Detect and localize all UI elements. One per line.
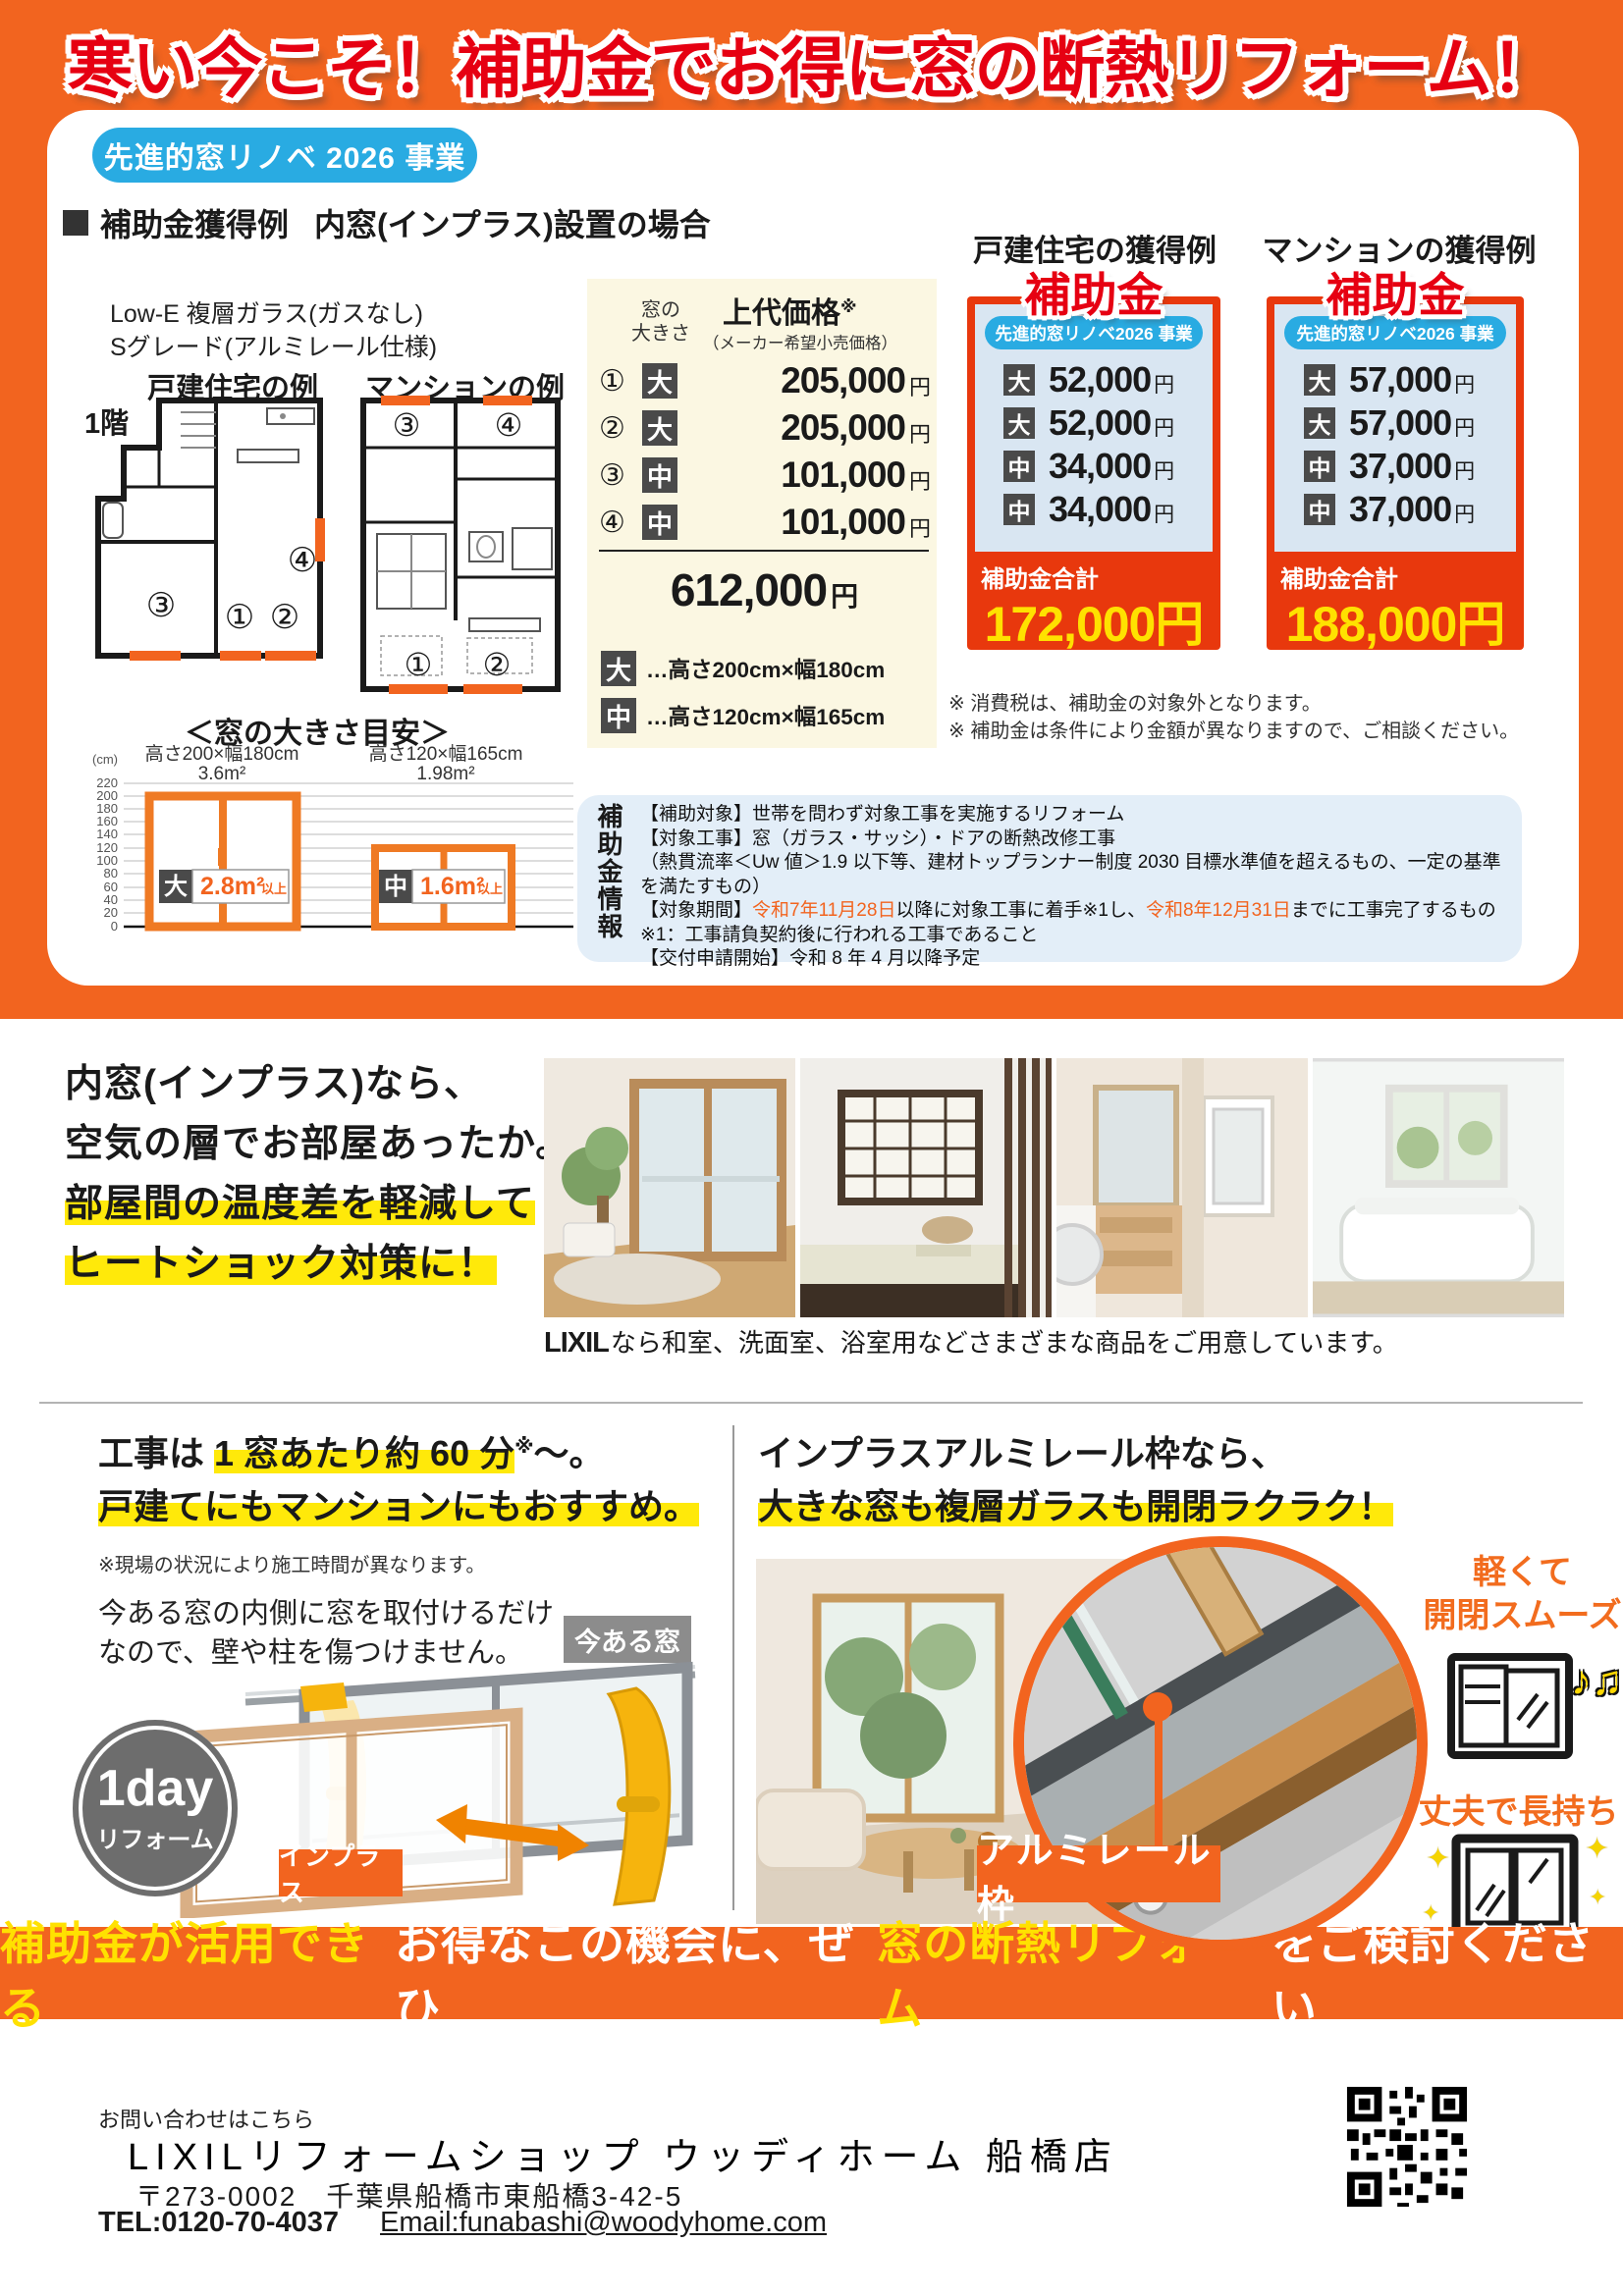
price-row: ① 大 205,000 円 — [599, 359, 931, 402]
main-title: 寒い今こそ！補助金でお得に窓の断熱リフォーム！ — [0, 16, 1623, 111]
info-line-6: 【交付申請開始】令和 8 年 4 月以降予定 — [640, 947, 1514, 972]
rail-label: アルミレール枠 — [977, 1845, 1220, 1902]
subsidy-row: 中 34,000 円 — [1003, 491, 1174, 528]
row-price: 205,000 — [677, 360, 905, 401]
one-day-reform-badge: 1day リフォーム — [73, 1720, 238, 1896]
sparkle-icon: ✦ — [1585, 1832, 1609, 1866]
column-divider — [732, 1425, 734, 1910]
feature-durable: 丈夫で長持ち — [1414, 1785, 1623, 1833]
company-name: LIXILリフォームショップ ウッディホーム 船橋店 — [128, 2126, 1118, 2180]
price-row: ② 大 205,000 円 — [599, 406, 931, 450]
price-col-header: 上代価格※ — [723, 289, 857, 332]
photo-caption: LIXILなら和室、洗面室、浴室用などさまざまな商品をご用意しています。 — [544, 1323, 1398, 1360]
plan-number-2: ② — [270, 599, 299, 636]
svg-text:20: 20 — [104, 905, 118, 920]
row-number: ① — [599, 364, 642, 399]
info-line-1: 【補助対象】世帯を問わず対象工事を実施するリフォーム — [640, 803, 1514, 828]
photo-bathroom — [1313, 1058, 1564, 1317]
info-line-4: 【対象期間】令和7年11月28日以降に対象工事に着手※1し、令和8年12月31日… — [640, 899, 1514, 924]
section-heading: 補助金獲得例 内窓(インプラス)設置の場合 — [63, 200, 711, 245]
price-note-mark: ※ — [840, 297, 857, 316]
subsidy-row: 大 52,000 円 — [1003, 361, 1174, 399]
ruler-ticks: 220200 180160 140120 10080 6040 200 — [96, 775, 118, 934]
plan-number-1: ① — [225, 599, 254, 636]
subsidy-row: 中 34,000 円 — [1003, 448, 1174, 485]
plan-number-4: ④ — [288, 542, 317, 579]
info-line-5: ※1：工事請負契約後に行われる工事であること — [640, 924, 1514, 948]
construction-heading-2: 戸建てにもマンションにもおすすめ。 — [98, 1478, 699, 1529]
size-legend-row: 大 …高さ200cm×幅180cm — [601, 648, 935, 689]
size-chip: 大 — [642, 363, 677, 399]
flyer-page: 寒い今こそ！補助金でお得に窓の断熱リフォーム！ 先進的窓リノベ 2026 事業 … — [0, 0, 1623, 2296]
size-legend-row: 中 …高さ120cm×幅165cm — [601, 695, 935, 736]
info-line-3: （熱貫流率＜Uw 値＞1.9 以下等、建材トップランナー制度 2030 目標水準… — [640, 851, 1514, 899]
phone-number: TEL:0120-70-4037 — [98, 2207, 339, 2239]
large-window-dims: 高さ200×幅180cm — [145, 744, 299, 765]
construction-heading-1: 工事は 1 窓あたり約 60 分※〜。 — [98, 1425, 605, 1476]
square-bullet-icon — [63, 210, 88, 236]
plan-number-3: ③ — [393, 407, 421, 443]
medium-chip: 中 — [384, 874, 407, 900]
subsidy-total: 188,000円 — [1267, 585, 1524, 656]
subsidy-label: 補助金 — [967, 257, 1220, 325]
spec-line-2: Sグレード(アルミレール仕様) — [110, 328, 437, 363]
email-link[interactable]: Email:funabashi@woodyhome.com — [380, 2207, 827, 2239]
subsidy-total: 172,000円 — [967, 585, 1220, 656]
contact-line: TEL:0120-70-4037 Email:funabashi@woodyho… — [98, 2207, 827, 2239]
subsidy-row: 中 37,000 円 — [1304, 491, 1475, 528]
qr-code — [1343, 2083, 1471, 2211]
benefit-line-3: 部屋間の温度差を軽減して — [65, 1174, 574, 1234]
unit-label: (cm) — [92, 752, 118, 767]
price-total: 612,000円 — [599, 563, 929, 616]
rail-pointer-dot — [1143, 1692, 1172, 1722]
svg-text:140: 140 — [96, 827, 118, 841]
construction-body-1: 今ある窓の内側に窓を取付けるだけ — [98, 1590, 554, 1631]
existing-window-tag: 今ある窓 — [564, 1616, 691, 1663]
large-min-area: 2.8m² — [200, 873, 264, 900]
section-heading-sub: 内窓(インプラス)設置の場合 — [314, 200, 711, 245]
medium-window-dims: 高さ120×幅165cm — [369, 744, 523, 765]
subsidy-info-text: 【補助対象】世帯を問わず対象工事を実施するリフォーム 【対象工事】窓（ガラス・サ… — [640, 803, 1514, 972]
construction-note: ※現場の状況により施工時間が異なります。 — [98, 1549, 485, 1577]
music-notes-icon: ♪♫ — [1571, 1657, 1623, 1704]
benefit-line-1: 内窓(インプラス)なら、 — [65, 1054, 574, 1114]
svg-text:0: 0 — [111, 919, 118, 934]
benefit-line-2: 空気の層でお部屋あったか。 — [65, 1114, 574, 1174]
price-col-subheader: （メーカー希望小売価格） — [703, 330, 897, 353]
plan-number-4: ④ — [495, 407, 523, 443]
house-floorplan: ③ ① ② ④ — [90, 393, 330, 666]
rail-heading-1: インプラスアルミレール枠なら、 — [758, 1425, 1286, 1476]
benefit-line-4: ヒートショック対策に！ — [65, 1234, 574, 1294]
large-window-area: 3.6m² — [198, 764, 246, 784]
info-line-2: 【対象工事】窓（ガラス・サッシ）・ドアの断熱改修工事 — [640, 828, 1514, 852]
rail-heading-2: 大きな窓も複層ガラスも開閉ラクラク！ — [758, 1478, 1393, 1529]
photo-japanese-room — [800, 1058, 1052, 1317]
feature-smooth: 軽くて 開閉スムーズ — [1422, 1551, 1623, 1637]
sparkle-icon: ✦ — [1426, 1842, 1450, 1876]
price-col-window-size: 窓の 大きさ — [617, 298, 705, 346]
plan-number-2: ② — [483, 647, 512, 682]
inplus-tag: インプラス — [279, 1849, 403, 1896]
sparkle-icon: ✦ — [1589, 1885, 1606, 1910]
bottom-banner: 補助金が活用できるお得なこの機会に、ぜひ窓の断熱リフォームをご検討ください — [0, 1927, 1623, 2019]
program-badge: 先進的窓リノベ 2026 事業 — [92, 128, 477, 183]
asterisk-mark: ※ — [514, 1436, 533, 1458]
price-row: ④ 中 101,000 円 — [599, 501, 931, 544]
medium-window-area: 1.98m² — [416, 764, 474, 784]
large-min-suffix: 以上 — [261, 881, 287, 896]
plan-number-3: ③ — [146, 587, 176, 624]
condition-note: ※ 補助金は条件により金額が異なりますので、ご相談ください。 — [948, 715, 1519, 743]
plan-number-1: ① — [405, 647, 433, 682]
benefit-copy: 内窓(インプラス)なら、 空気の層でお部屋あったか。 部屋間の温度差を軽減して … — [65, 1054, 574, 1294]
price-row: ③ 中 101,000 円 — [599, 454, 931, 497]
price-divider — [599, 550, 929, 552]
subsidy-row: 大 57,000 円 — [1304, 361, 1475, 399]
sliding-window-icon — [1445, 1651, 1575, 1761]
lixil-logo: LIXIL — [544, 1327, 609, 1359]
medium-min-suffix: 以上 — [477, 881, 503, 896]
subsidy-label: 補助金 — [1267, 257, 1524, 325]
subsidy-info-title: 補助金情報 — [591, 803, 627, 954]
size-guide-diagram: (cm) 220200 180160 140120 10080 6040 200… — [84, 744, 580, 958]
spec-line-1: Low-E 複層ガラス(ガスなし) — [110, 294, 423, 330]
tax-note: ※ 消費税は、補助金の対象外となります。 — [948, 687, 1322, 716]
svg-text:80: 80 — [104, 866, 118, 881]
subsidy-row: 大 52,000 円 — [1003, 404, 1174, 442]
yen-unit: 円 — [909, 360, 931, 401]
section-divider — [39, 1402, 1583, 1404]
medium-min-area: 1.6m² — [420, 873, 484, 900]
end-date: 令和8年12月31日 — [1146, 900, 1291, 921]
photo-washroom — [1056, 1058, 1308, 1317]
mansion-floorplan: ③ ④ ① ② — [353, 385, 569, 705]
section-heading-text: 補助金獲得例 — [100, 200, 289, 245]
large-chip: 大 — [164, 874, 188, 900]
subsidy-row: 中 37,000 円 — [1304, 448, 1475, 485]
subsidy-row: 大 57,000 円 — [1304, 404, 1475, 442]
photo-living-room — [544, 1058, 795, 1317]
start-date: 令和7年11月28日 — [752, 900, 895, 921]
